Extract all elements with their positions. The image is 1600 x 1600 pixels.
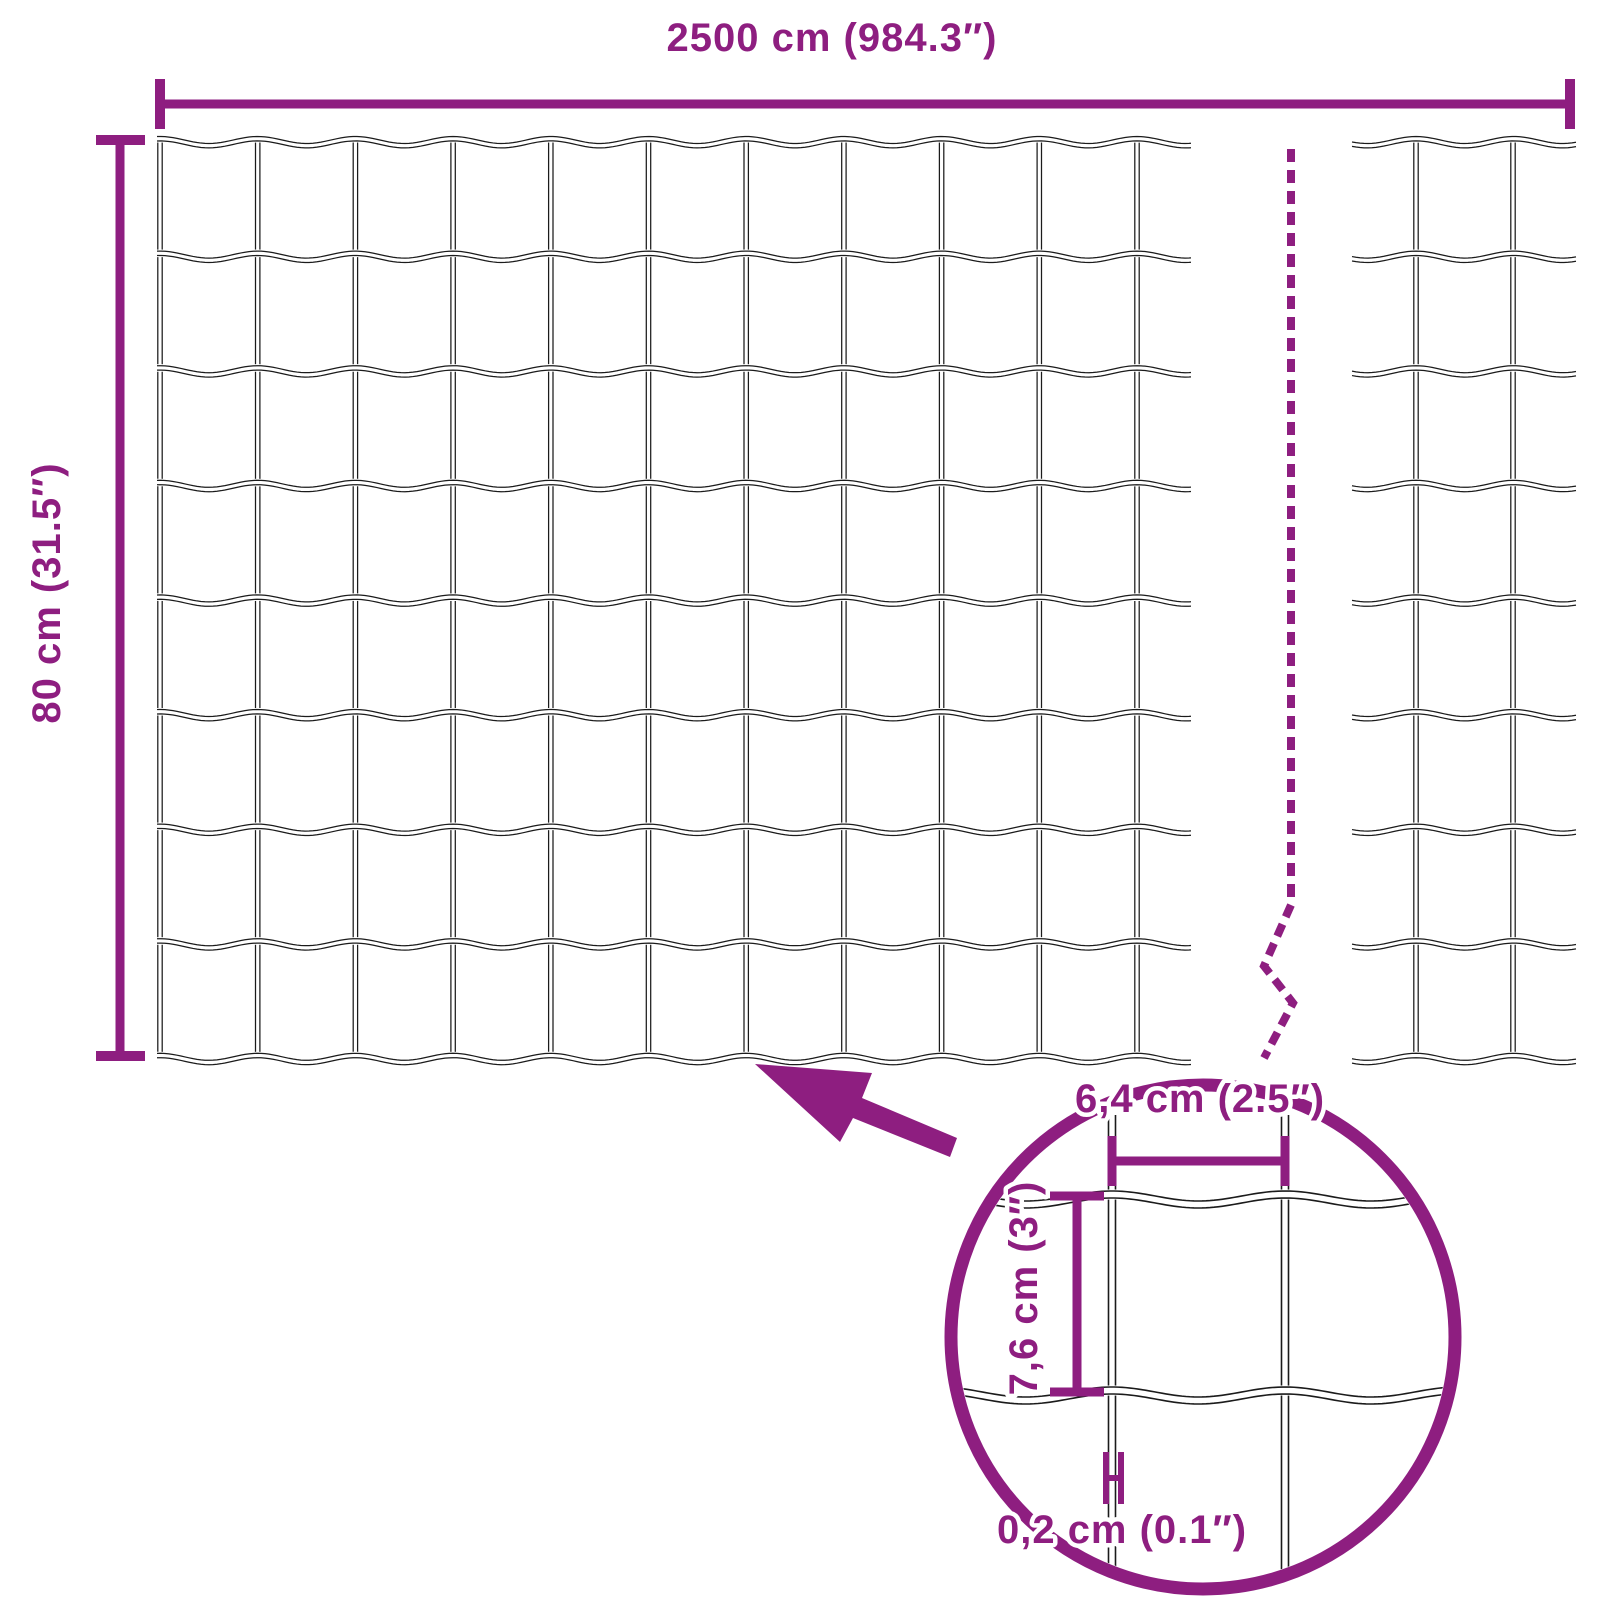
wire-mesh-drawing: [157, 137, 1576, 1065]
zoom-arrow-shape: [755, 1064, 957, 1157]
total-length-label: 2500 cm (984.3″): [667, 16, 998, 60]
total-height-label: 80 cm (31.5″): [25, 462, 69, 723]
overall-dimension-lines: [96, 79, 1570, 1056]
fence-dimension-diagram: 2500 cm (984.3″) 80 cm (31.5″) 6,4 cm (2…: [0, 0, 1600, 1600]
mesh-opening-width-label: 6,4 cm (2.5″): [1075, 1077, 1325, 1121]
height-dimension: [96, 140, 145, 1056]
mesh-opening-height-label: 7,6 cm (3″): [1002, 1181, 1046, 1396]
diagram-canvas: 2500 cm (984.3″) 80 cm (31.5″) 6,4 cm (2…: [0, 0, 1600, 1600]
continuation-dashed-line: [1264, 149, 1293, 1058]
mesh-height-dimension: [1050, 1196, 1104, 1392]
wire-thickness-label: 0,2 cm (0.1″): [997, 1508, 1247, 1552]
length-dimension: [160, 79, 1570, 129]
zoom-arrow: [755, 1064, 957, 1157]
mesh-width-dimension: [1112, 1136, 1285, 1186]
